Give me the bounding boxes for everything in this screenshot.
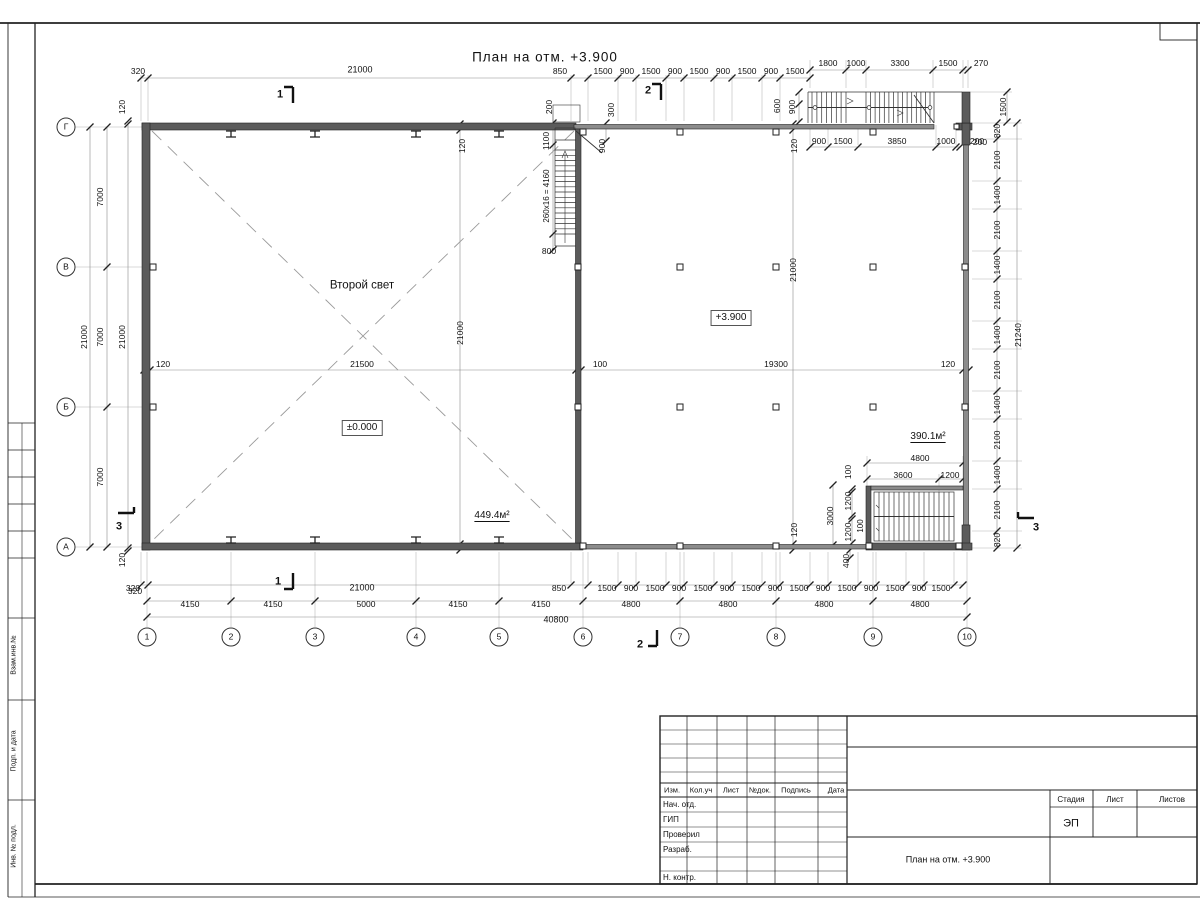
dim-1200: 1200 (844, 492, 853, 511)
dim-400: 400 (842, 554, 851, 568)
dim-4800: 4800 (815, 600, 834, 609)
dim-3000: 3000 (826, 507, 835, 526)
dim-4800: 4800 (719, 600, 738, 609)
dim-200: 200 (973, 138, 987, 147)
dim-100: 100 (593, 360, 607, 369)
level-mark-3900: +3.900 (711, 310, 752, 326)
dim-40800: 40800 (543, 616, 568, 625)
side-inv-podl: Инв. № подл. (11, 824, 18, 868)
dim-4150: 4150 (532, 600, 551, 609)
dim-200: 200 (545, 100, 554, 114)
dim-900: 900 (788, 100, 797, 114)
tb-row-proveril: Проверил (663, 831, 700, 839)
dim-3600: 3600 (894, 471, 913, 480)
dim-1500: 1500 (646, 584, 665, 593)
dim-4150: 4150 (449, 600, 468, 609)
dim-1400: 1400 (993, 256, 1002, 275)
tb-stage-header: Стадия (1057, 796, 1084, 804)
dim-2100: 2100 (993, 221, 1002, 240)
side-vzam-inv: Взам.инв.№ (11, 635, 18, 674)
section-2-top: 2 (645, 86, 651, 97)
axis-10: 10 (958, 628, 977, 647)
dim-1500: 1500 (939, 59, 958, 68)
axis-v: В (57, 258, 76, 277)
side-podp-data: Подп. и дата (11, 730, 18, 771)
tb-sheet-header: Лист (1106, 796, 1123, 804)
dim-21000: 21000 (347, 66, 372, 75)
axis-a: А (57, 538, 76, 557)
dim-21000: 21000 (349, 584, 374, 593)
dim-900: 900 (672, 584, 686, 593)
dim-120: 120 (790, 523, 799, 537)
dim-2100: 2100 (993, 501, 1002, 520)
tb-col-podpis: Подпись (781, 786, 811, 794)
room-label-second-light: Второй свет (330, 280, 394, 292)
dim-1000: 1000 (937, 137, 956, 146)
dim-1400: 1400 (993, 326, 1002, 345)
section-2-bottom: 2 (637, 640, 643, 651)
dim-4800: 4800 (911, 600, 930, 609)
dim-1500: 1500 (738, 67, 757, 76)
dim-21000: 21000 (118, 325, 127, 349)
dim-1500: 1500 (790, 584, 809, 593)
dim-850: 850 (552, 584, 566, 593)
dim-7000: 7000 (96, 468, 105, 487)
dim-1000: 1000 (847, 59, 866, 68)
dim-900: 900 (816, 584, 830, 593)
level-mark-zero: ±0.000 (342, 420, 383, 436)
dim-1100: 1100 (542, 132, 551, 150)
dim-3850: 3850 (888, 137, 907, 146)
dim-1500: 1500 (834, 137, 853, 146)
area-449: 449.4м² (474, 511, 509, 521)
dim-1200: 1200 (941, 471, 960, 480)
dim-21240: 21240 (1014, 323, 1023, 347)
dim-820: 820 (993, 533, 1002, 547)
dim-900: 900 (720, 584, 734, 593)
dim-21000: 21000 (456, 321, 465, 345)
dim-120: 120 (941, 360, 955, 369)
dim-800: 800 (542, 247, 556, 256)
dim-4150: 4150 (181, 600, 200, 609)
dim-320: 320 (126, 584, 140, 593)
dim-900: 900 (912, 584, 926, 593)
dim-600: 600 (773, 99, 782, 113)
dim-900: 900 (812, 137, 826, 146)
axis-4: 4 (407, 628, 426, 647)
tb-stage-value: ЭП (1063, 819, 1079, 830)
section-1-bottom: 1 (275, 577, 281, 588)
dim-1500: 1500 (932, 584, 951, 593)
tb-row-nach-otd: Нач. отд. (663, 801, 696, 809)
dim-1500: 1500 (598, 584, 617, 593)
tb-col-list: Лист (723, 786, 739, 794)
dim-1400: 1400 (993, 466, 1002, 485)
section-3-right: 3 (1033, 523, 1039, 534)
tb-doc-title: План на отм. +3.900 (906, 856, 991, 865)
dim-19300: 19300 (764, 360, 788, 369)
dim-1400: 1400 (993, 396, 1002, 415)
dim-900: 900 (620, 67, 634, 76)
dim-120: 120 (156, 360, 170, 369)
axis-2: 2 (222, 628, 241, 647)
dim-320: 320 (131, 67, 145, 76)
dim-900: 900 (624, 584, 638, 593)
axis-b: Б (57, 398, 76, 417)
dim-1500: 1500 (642, 67, 661, 76)
dim-1500: 1500 (690, 67, 709, 76)
dim-900: 900 (598, 139, 607, 153)
dim-5000: 5000 (357, 600, 376, 609)
dim-2100: 2100 (993, 291, 1002, 310)
axis-9: 9 (864, 628, 883, 647)
dim-2100: 2100 (993, 431, 1002, 450)
dim-4150: 4150 (264, 600, 283, 609)
axis-5: 5 (490, 628, 509, 647)
dim-900: 900 (768, 584, 782, 593)
dim-1800: 1800 (819, 59, 838, 68)
axis-8: 8 (767, 628, 786, 647)
dim-270: 270 (974, 59, 988, 68)
dim-1400: 1400 (993, 186, 1002, 205)
tb-col-ndok: №док. (749, 786, 771, 794)
dim-1500: 1500 (838, 584, 857, 593)
tb-sheets-header: Листов (1159, 796, 1185, 804)
dim-4800: 4800 (911, 454, 930, 463)
dim-850: 850 (553, 67, 567, 76)
dim-1500: 1500 (786, 67, 805, 76)
axis-1: 1 (138, 628, 157, 647)
dim-4800: 4800 (622, 600, 641, 609)
stair-formula: 260x16 = 4160 (543, 169, 551, 222)
tb-col-data: Дата (828, 786, 845, 794)
dim-900: 900 (716, 67, 730, 76)
axis-g: Г (57, 118, 76, 137)
dim-1500: 1500 (742, 584, 761, 593)
dim-900: 900 (668, 67, 682, 76)
dim-120: 120 (458, 139, 467, 153)
section-3-left: 3 (116, 522, 122, 533)
dim-21000: 21000 (80, 325, 89, 349)
section-1-top: 1 (277, 90, 283, 101)
axis-7: 7 (671, 628, 690, 647)
tb-col-koluch: Кол.уч (690, 786, 713, 794)
tb-col-izm: Изм. (664, 786, 680, 794)
dim-100: 100 (857, 519, 865, 532)
dim-120: 120 (790, 139, 799, 153)
dim-21000: 21000 (789, 258, 798, 282)
dim-1500: 1500 (999, 98, 1008, 117)
tb-row-nkontr: Н. контр. (663, 874, 696, 882)
axis-3: 3 (306, 628, 325, 647)
dim-1500: 1500 (694, 584, 713, 593)
dim-1500: 1500 (594, 67, 613, 76)
axis-6: 6 (574, 628, 593, 647)
dim-900: 900 (764, 67, 778, 76)
dim-21500: 21500 (350, 360, 374, 369)
dim-7000: 7000 (96, 188, 105, 207)
dim-120: 120 (118, 100, 127, 114)
dim-900: 900 (864, 584, 878, 593)
tb-row-gip: ГИП (663, 816, 679, 824)
label-layer: 3202100085015009001500900150090015009001… (0, 0, 1200, 900)
dim-3300: 3300 (891, 59, 910, 68)
dim-820: 820 (993, 124, 1002, 138)
dim-1200: 1200 (844, 523, 853, 542)
dim-2100: 2100 (993, 361, 1002, 380)
dim-300: 300 (607, 103, 616, 117)
drawing-sheet: План на отм. +3.900 32021000850150090015… (0, 0, 1200, 900)
tb-row-razrab: Разраб. (663, 846, 692, 854)
dim-1500: 1500 (886, 584, 905, 593)
dim-100: 100 (844, 465, 853, 479)
dim-120: 120 (118, 553, 127, 567)
area-390: 390.1м² (910, 432, 945, 442)
dim-2100: 2100 (993, 151, 1002, 170)
dim-7000: 7000 (96, 328, 105, 347)
